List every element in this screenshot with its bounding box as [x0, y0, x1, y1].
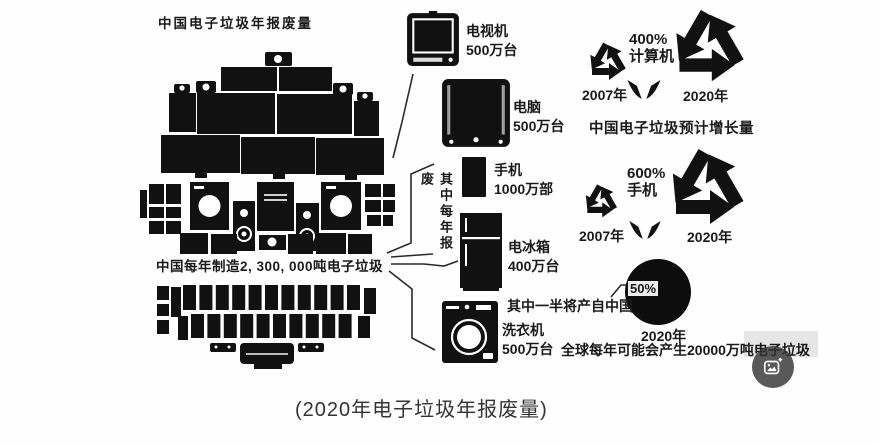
recycle-icon-small-phones: [582, 183, 619, 220]
device-name: 手机: [494, 162, 522, 178]
growth-percent: 600%: [627, 165, 665, 182]
growth-phones-from-year: 2007年: [579, 226, 624, 246]
device-name: 电脑: [513, 99, 541, 115]
growth-computers-to-year: 2020年: [683, 86, 728, 106]
device-qty: 500万台: [513, 118, 564, 134]
recycle-icon-small-computers: [586, 41, 628, 83]
double-arrow-icon: [626, 218, 664, 243]
device-name: 电视机: [466, 23, 508, 39]
device-label-computer: 电脑 500万台: [513, 98, 564, 136]
growth-phones-label: 600% 手机: [627, 165, 665, 199]
ewaste-pile-graphic: [140, 48, 410, 378]
device-qty: 500万台: [502, 341, 553, 357]
image-caption: (2020年电子垃圾年报废量): [295, 393, 548, 422]
pie-slice-label: 50%: [628, 281, 658, 296]
pie-note: 其中一半将产自中国: [507, 296, 633, 316]
device-label-tv: 电视机 500万台: [466, 22, 517, 60]
pile-title: 中国电子垃圾年报废量: [158, 12, 313, 32]
device-label-fridge: 电冰箱 400万台: [508, 238, 559, 276]
device-qty: 500万台: [466, 42, 517, 58]
ewaste-infographic: 中国电子垃圾年报废量: [0, 0, 879, 445]
computer-icon: [441, 78, 511, 150]
recycle-icon-large-computers: [668, 8, 748, 86]
device-label-phone: 手机 1000万部: [494, 161, 553, 199]
device-qty: 400万台: [508, 258, 559, 274]
image-search-icon: [762, 356, 784, 378]
device-name: 电冰箱: [508, 239, 550, 255]
fridge-icon: [459, 212, 503, 292]
brace-label: 其中每年报废: [417, 172, 455, 262]
washer-icon: [441, 300, 499, 364]
device-name: 洗衣机: [502, 322, 544, 338]
double-arrow-icon: [624, 77, 664, 103]
growth-title: 中国电子垃圾预计增长量: [589, 117, 754, 138]
growth-percent: 400%: [629, 31, 667, 48]
device-label-washer: 洗衣机 500万台: [502, 321, 553, 359]
recycle-icon-large-phones: [664, 146, 748, 230]
growth-phones-to-year: 2020年: [687, 227, 732, 247]
growth-category: 手机: [627, 182, 657, 199]
growth-computers-from-year: 2007年: [582, 85, 627, 105]
pile-note: 中国每年制造2, 300, 000吨电子垃圾: [156, 255, 383, 275]
tv-icon: [406, 11, 460, 67]
device-qty: 1000万部: [494, 181, 553, 197]
image-search-button[interactable]: [752, 346, 794, 388]
phone-icon: [462, 157, 486, 197]
